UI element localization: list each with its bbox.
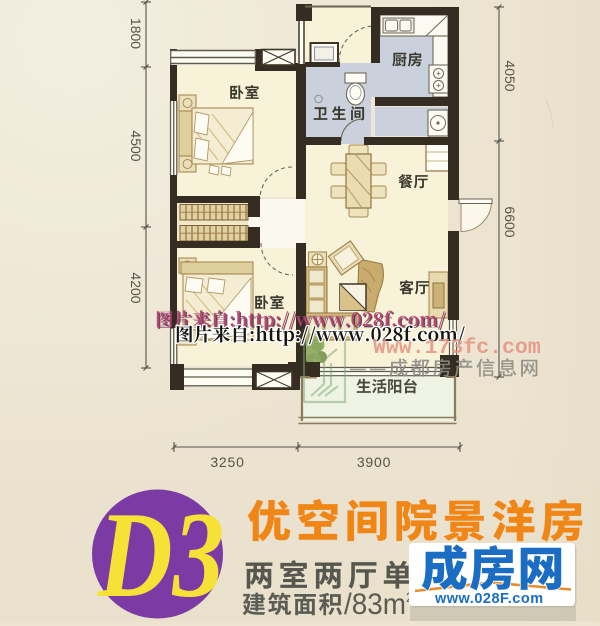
svg-text:3250: 3250	[210, 454, 244, 470]
svg-text:www.028F.com: www.028F.com	[434, 591, 544, 607]
svg-text:3900: 3900	[357, 454, 391, 470]
svg-text:D3: D3	[97, 487, 224, 621]
svg-text:1800: 1800	[128, 18, 144, 49]
svg-text:4200: 4200	[128, 272, 144, 303]
svg-text:Www.173fc.com: Www.173fc.com	[373, 336, 541, 360]
svg-text:4050: 4050	[502, 60, 518, 91]
svg-text:4500: 4500	[128, 130, 144, 161]
svg-text:6600: 6600	[502, 206, 518, 237]
svg-text:/83m: /83m	[344, 588, 406, 621]
